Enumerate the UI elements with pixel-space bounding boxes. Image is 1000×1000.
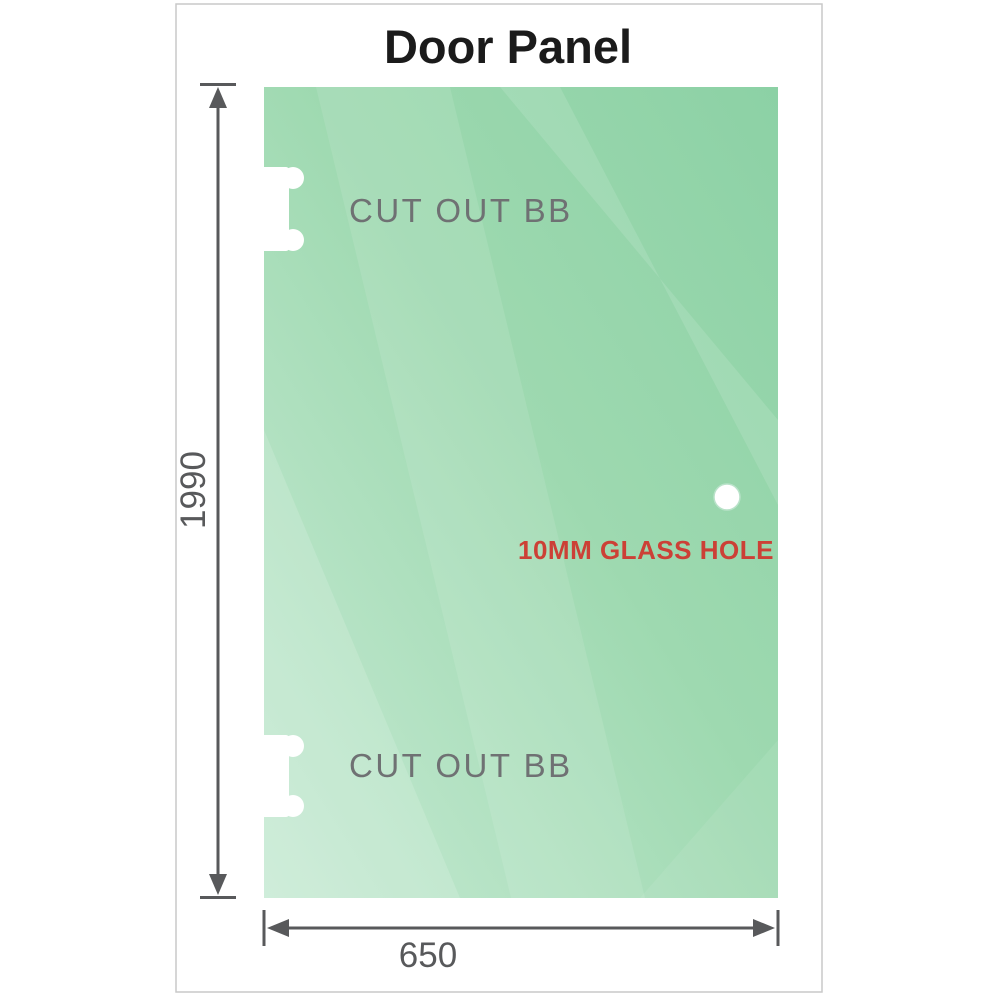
cutout-drill-hole: [282, 795, 304, 817]
diagram-canvas: Door Panel: [0, 0, 1000, 1000]
width-dimension-value: 650: [399, 936, 457, 975]
cutout-drill-hole: [282, 735, 304, 757]
cutout-drill-hole: [282, 229, 304, 251]
glass-hole: [714, 484, 740, 510]
glass-hole-label: 10MM GLASS HOLE: [518, 535, 774, 565]
cutout-top-label: CUT OUT BB: [349, 192, 573, 229]
cutout-drill-hole: [282, 167, 304, 189]
page-title: Door Panel: [384, 20, 632, 73]
cutout-bottom-label: CUT OUT BB: [349, 747, 573, 784]
door-panel-diagram: Door Panel: [0, 0, 1000, 1000]
height-dimension-value: 1990: [174, 451, 213, 529]
